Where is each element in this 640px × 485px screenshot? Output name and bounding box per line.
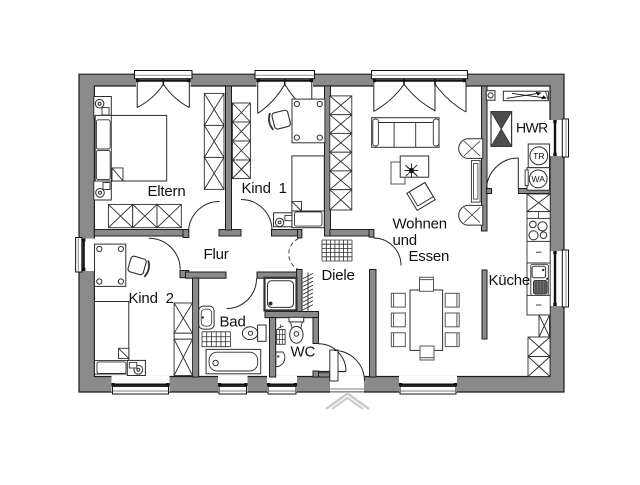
svg-text:Wohnen: Wohnen xyxy=(393,216,447,233)
svg-text:Bad: Bad xyxy=(220,314,246,331)
svg-text:und: und xyxy=(393,232,417,249)
svg-text:TR: TR xyxy=(533,151,544,161)
svg-text:Essen: Essen xyxy=(409,248,450,265)
svg-text:Flur: Flur xyxy=(204,246,229,263)
svg-text:WA: WA xyxy=(532,174,546,184)
svg-text:Küche: Küche xyxy=(489,272,531,289)
svg-text:Kind 1: Kind 1 xyxy=(242,180,287,197)
svg-text:Diele: Diele xyxy=(322,267,355,284)
svg-text:Kind 2: Kind 2 xyxy=(129,290,174,307)
svg-text:Eltern: Eltern xyxy=(148,183,186,200)
svg-text:HWR: HWR xyxy=(516,120,548,136)
svg-text:WC: WC xyxy=(291,344,316,361)
